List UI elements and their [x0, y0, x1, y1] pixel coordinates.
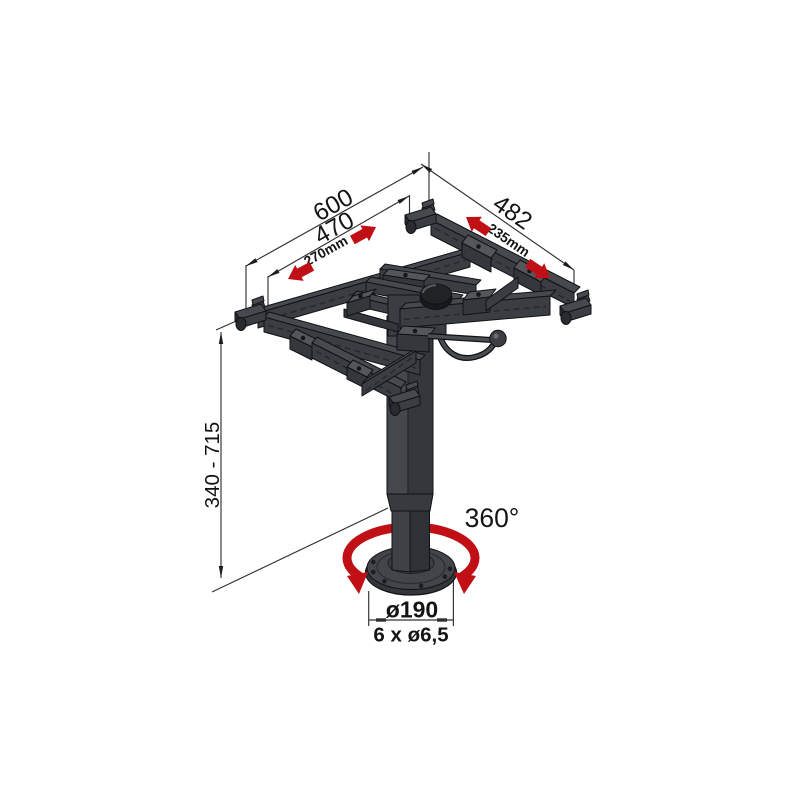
svg-text:ø190: ø190 — [386, 597, 438, 623]
svg-text:360°: 360° — [465, 503, 520, 533]
svg-text:6 x ø6,5: 6 x ø6,5 — [373, 624, 448, 647]
svg-text:340 - 715: 340 - 715 — [201, 422, 224, 509]
